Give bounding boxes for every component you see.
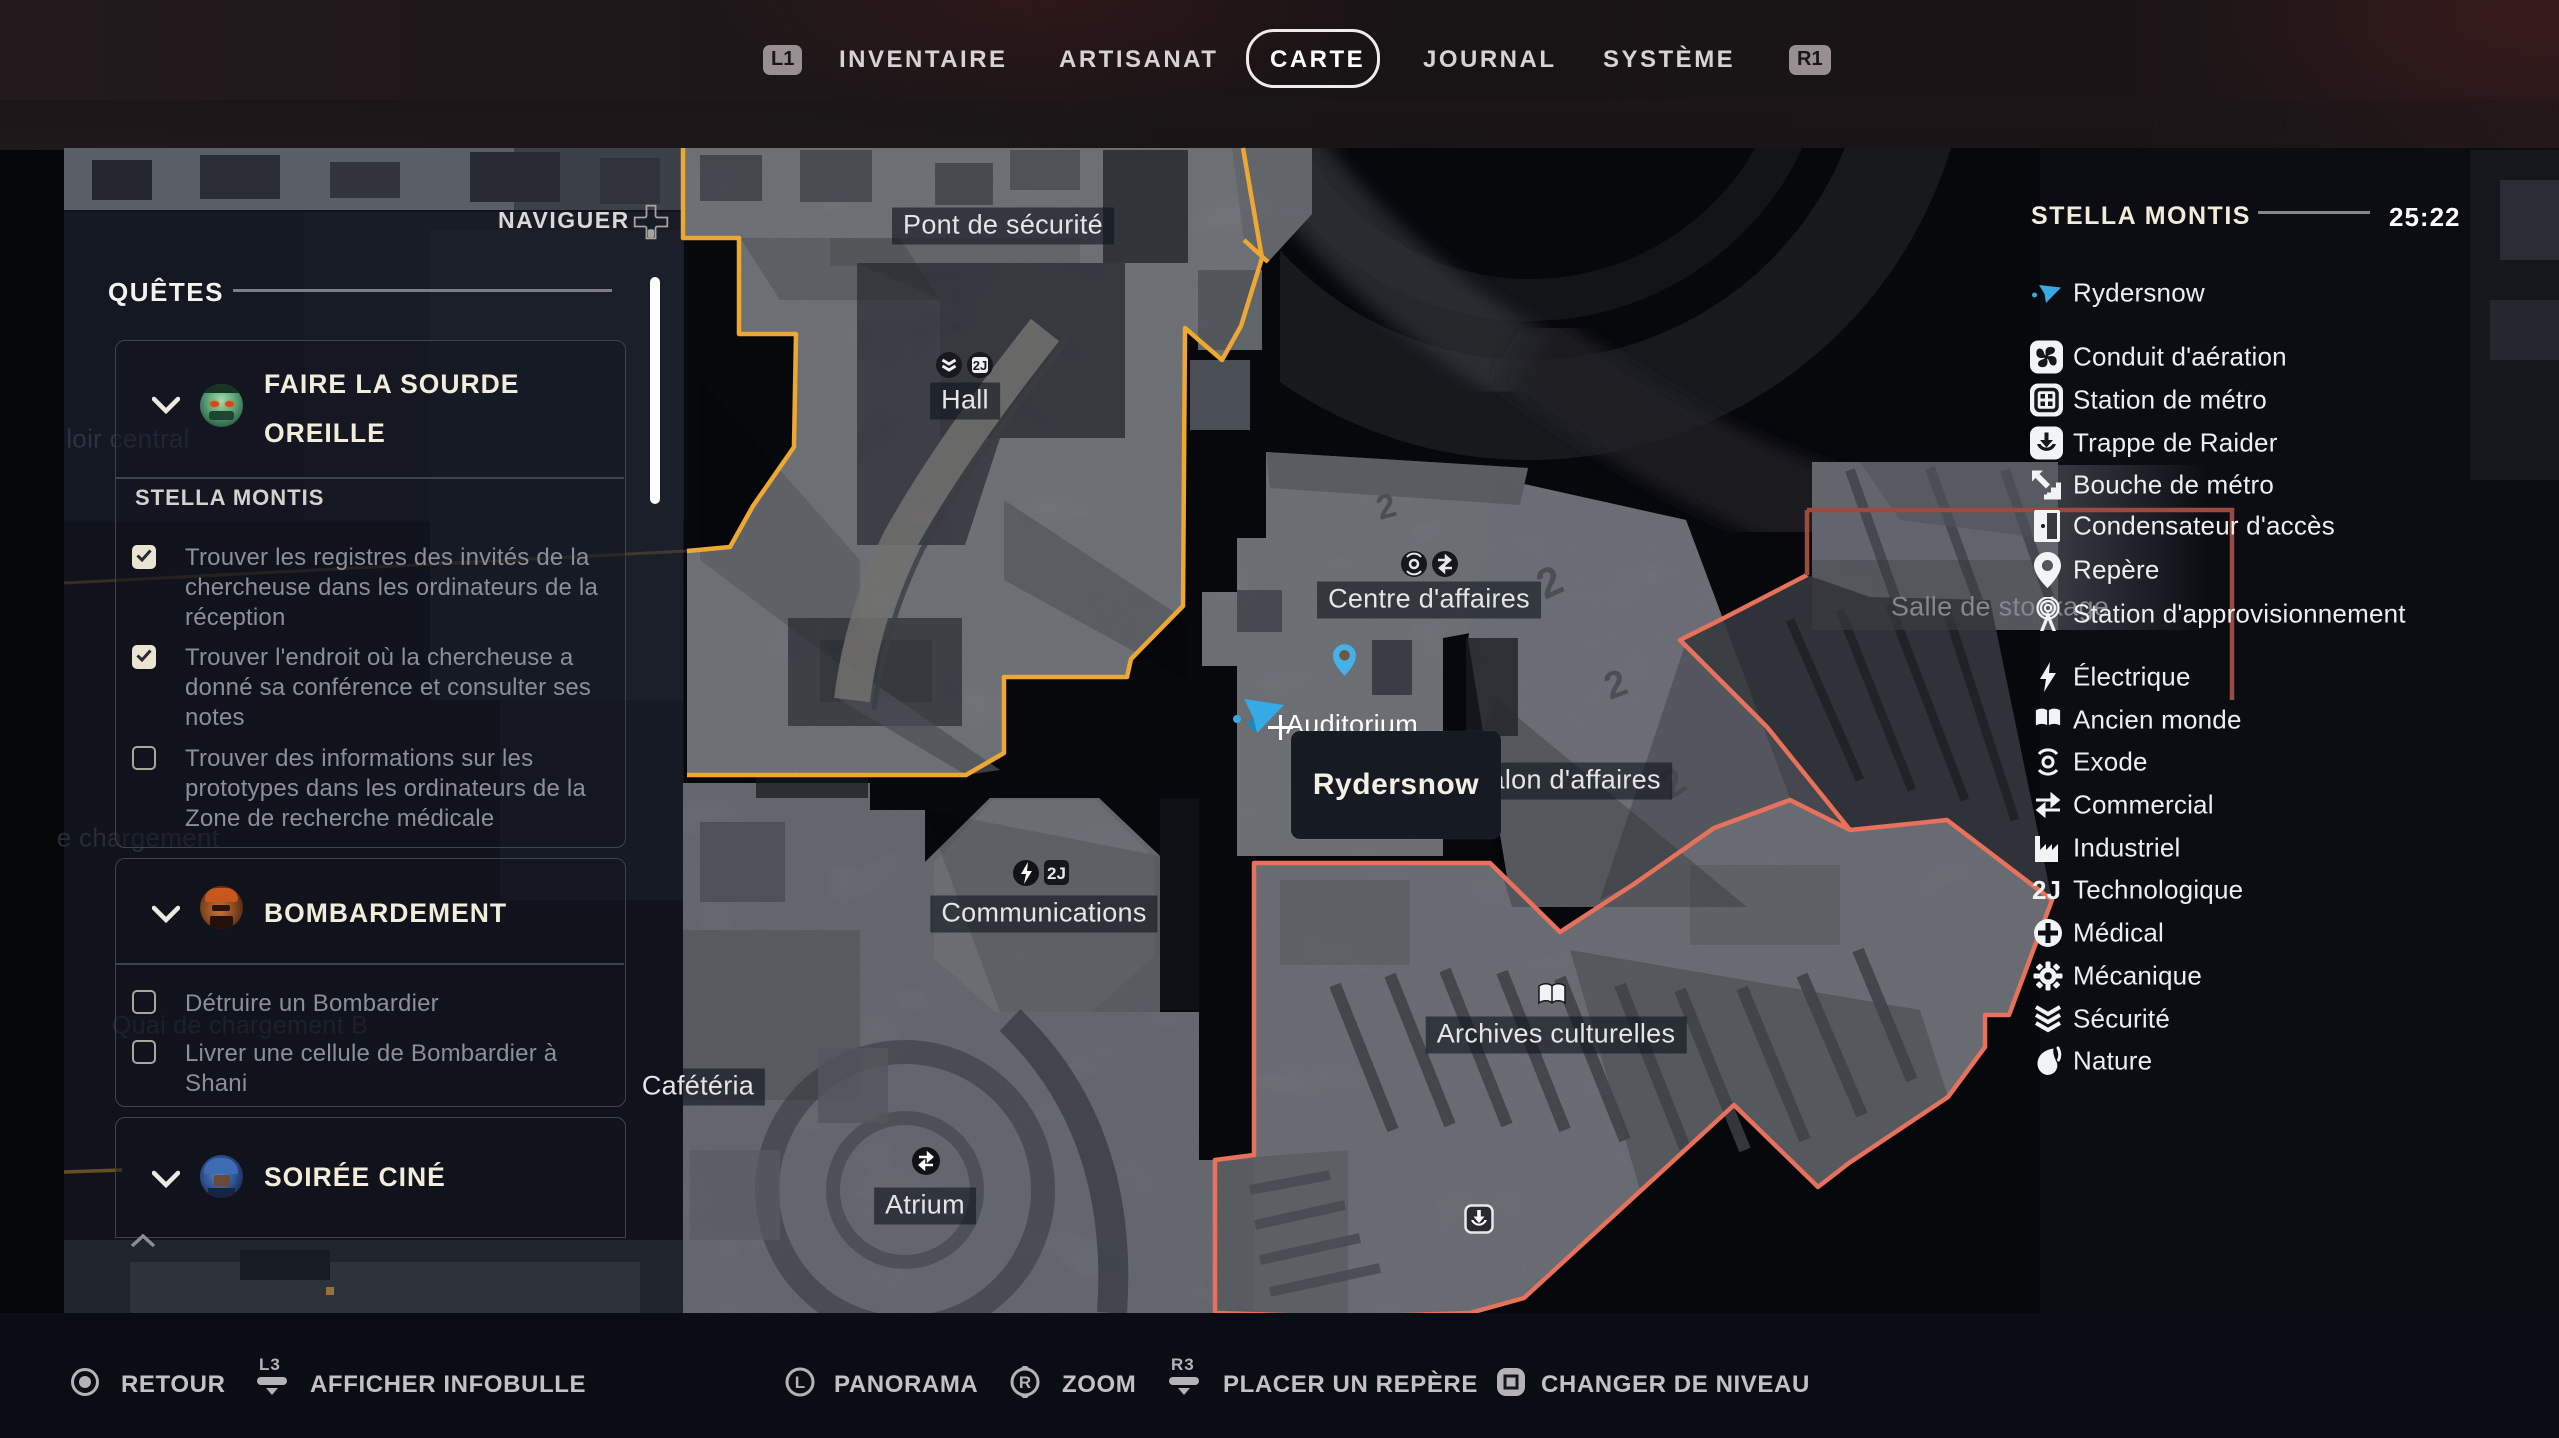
svg-text:2J: 2J	[1047, 864, 1066, 883]
svg-text:R: R	[1019, 1373, 1031, 1392]
svg-text:2J: 2J	[973, 358, 987, 373]
svg-text:2J: 2J	[2032, 875, 2061, 905]
svg-text:L: L	[795, 1373, 805, 1392]
